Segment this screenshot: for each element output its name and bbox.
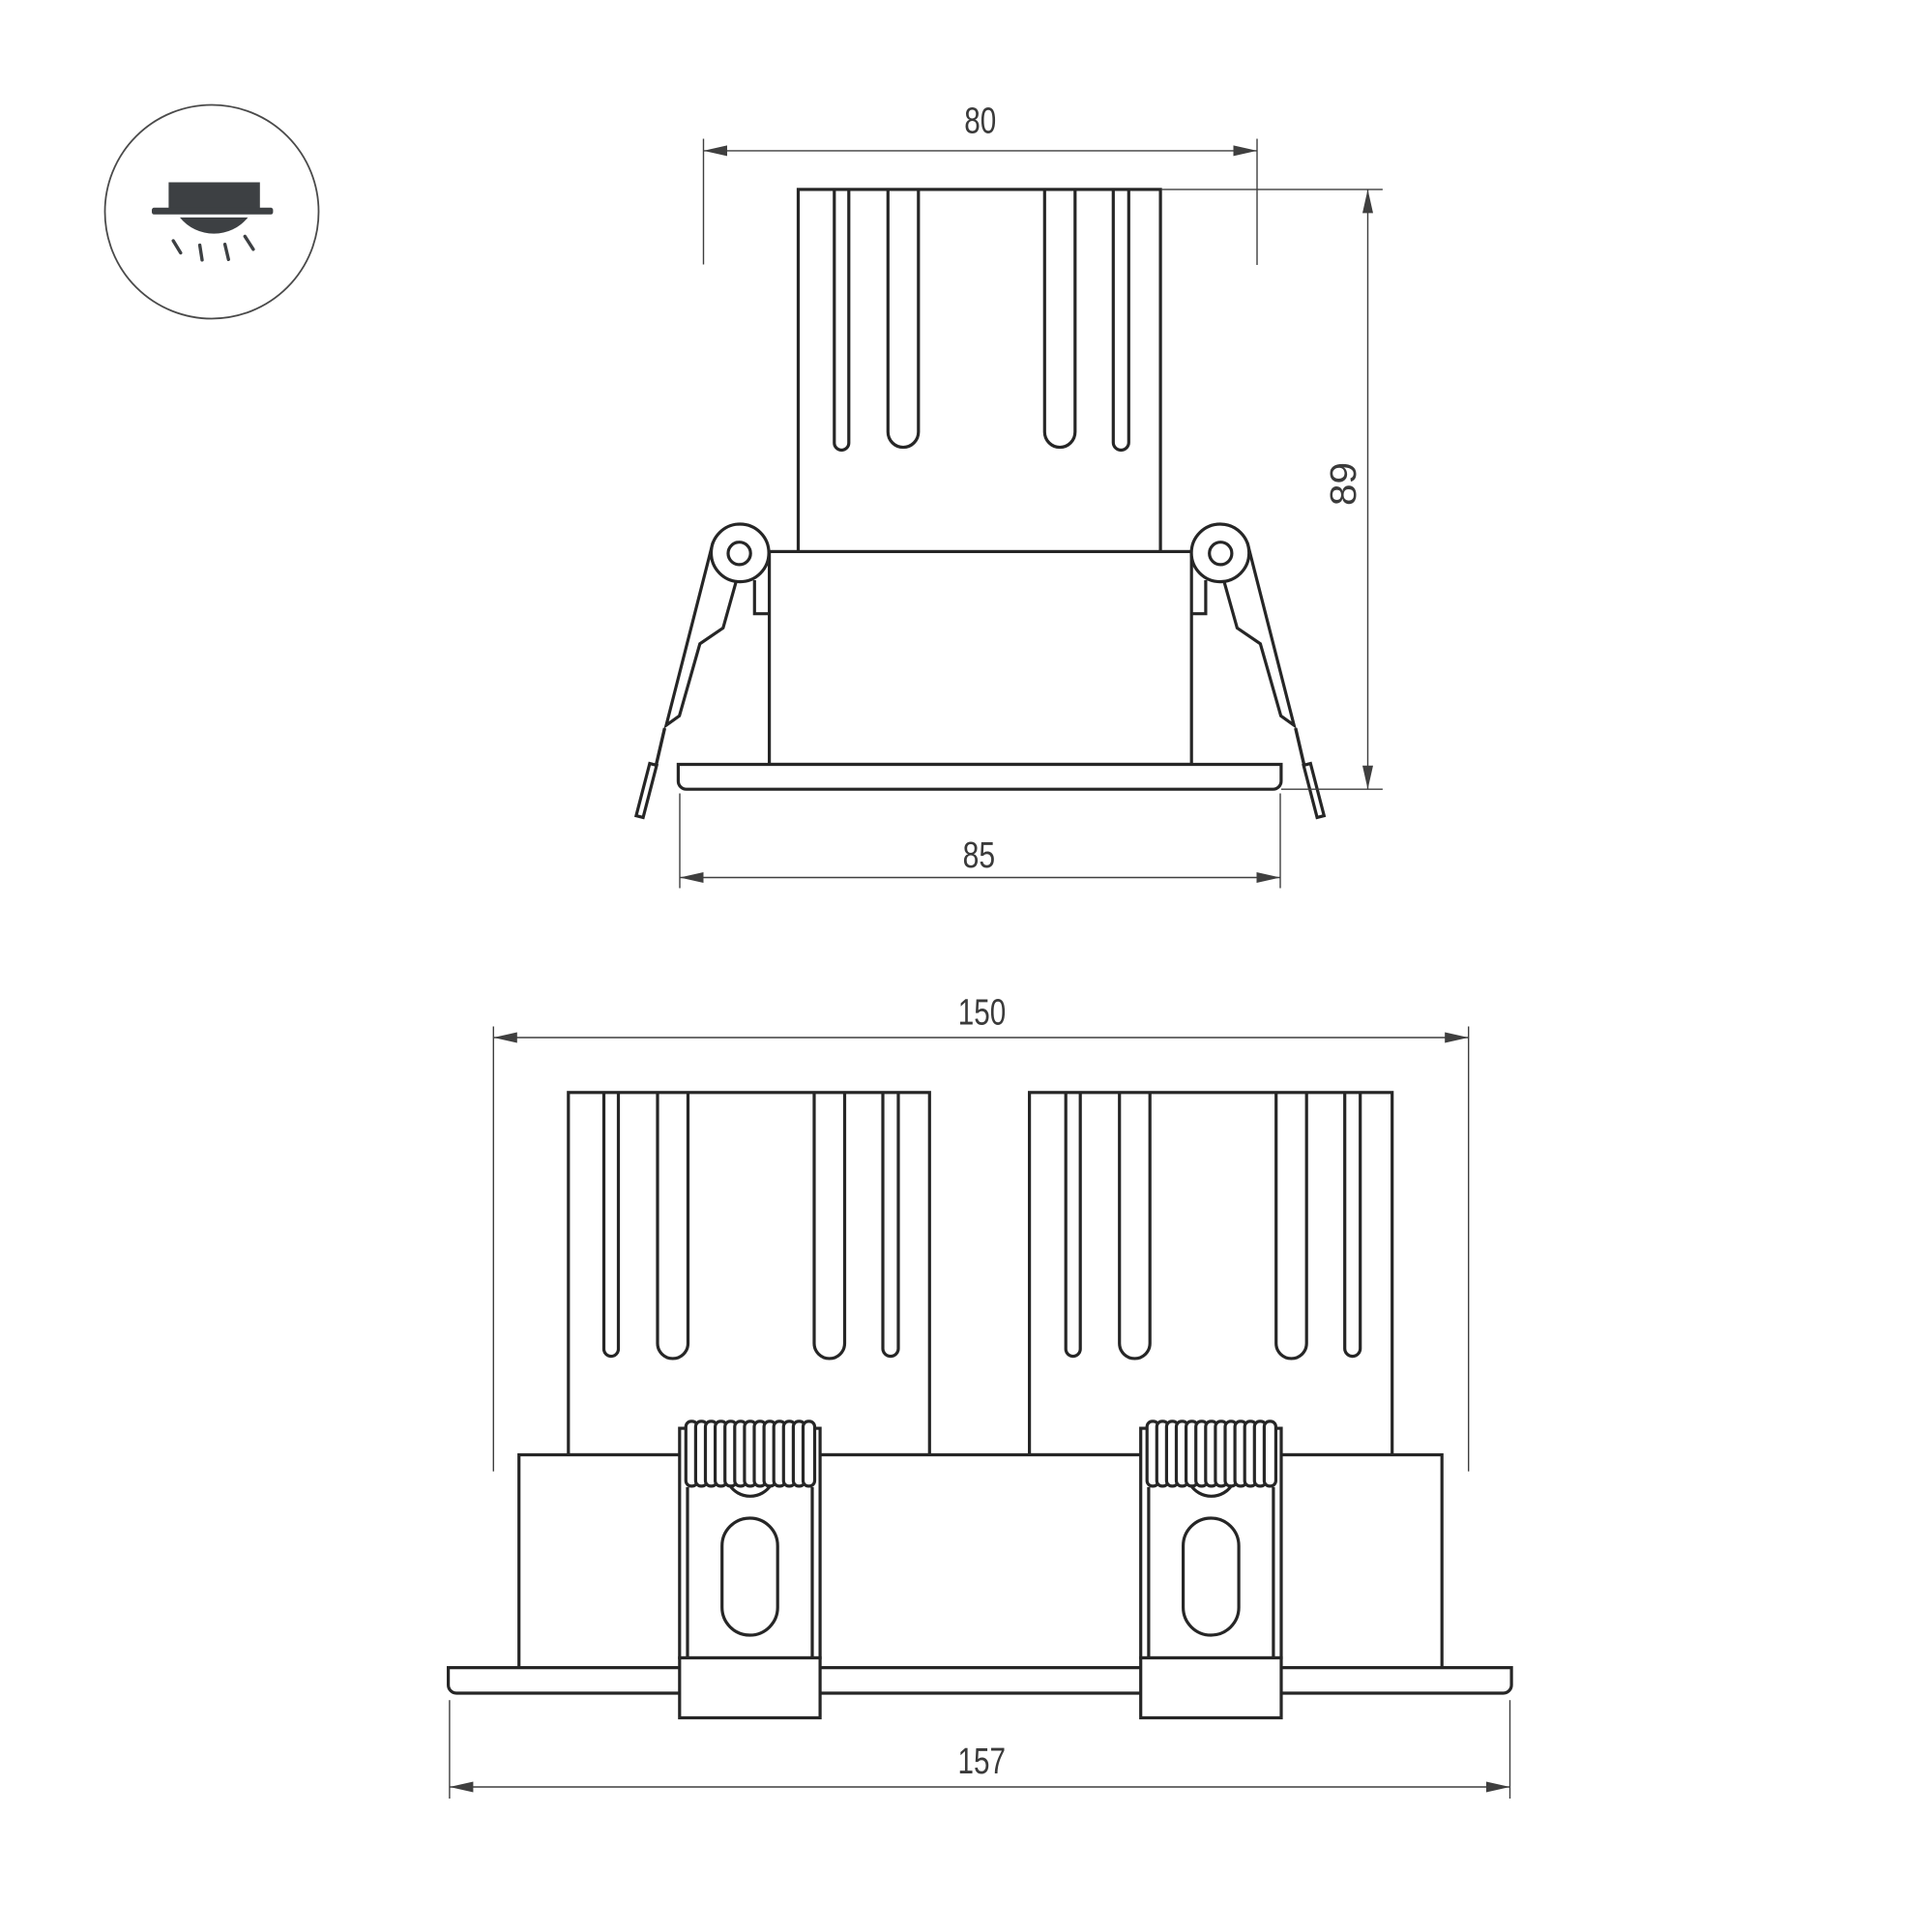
svg-text:80: 80 xyxy=(964,102,996,142)
svg-text:150: 150 xyxy=(958,993,1007,1034)
svg-text:85: 85 xyxy=(963,835,996,876)
svg-text:157: 157 xyxy=(958,1742,1007,1782)
svg-text:89: 89 xyxy=(1324,462,1364,506)
